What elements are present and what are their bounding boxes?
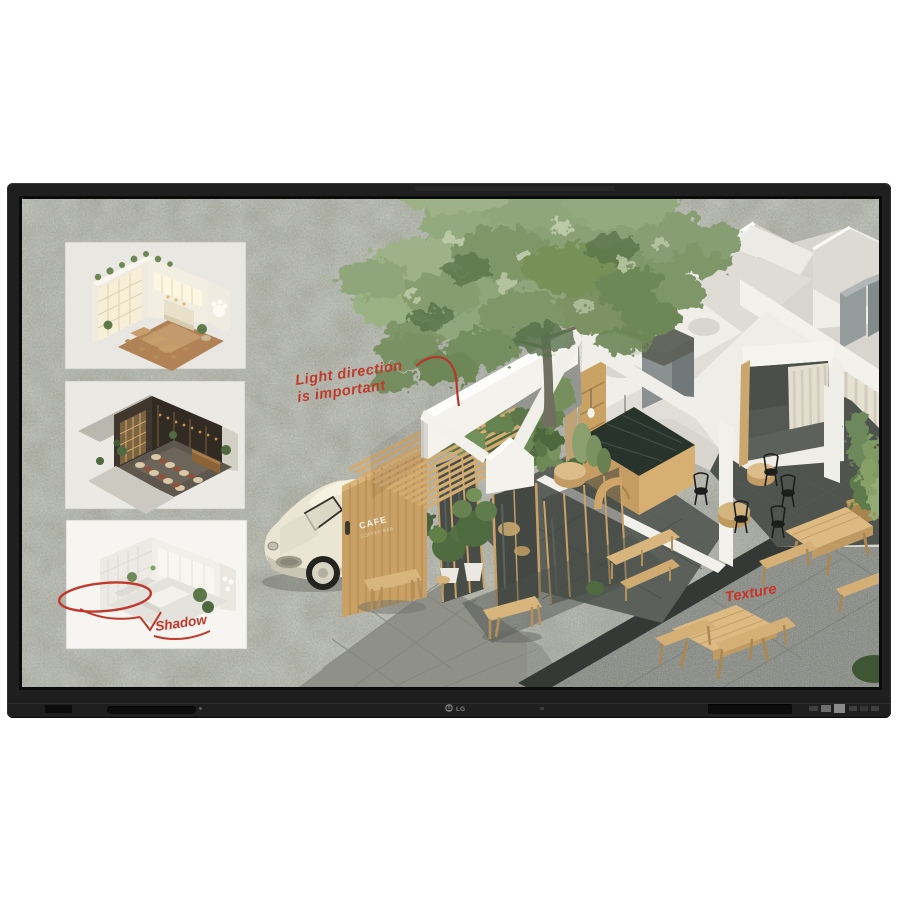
svg-text:LG: LG: [456, 706, 465, 713]
